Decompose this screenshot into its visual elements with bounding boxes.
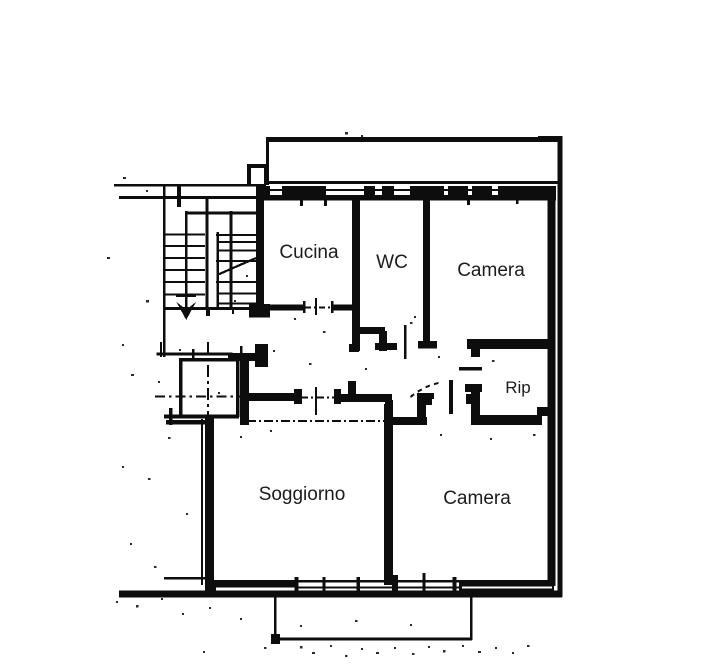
svg-text:WC: WC	[376, 252, 408, 273]
svg-text:Camera: Camera	[443, 488, 511, 509]
svg-text:Rip: Rip	[505, 378, 531, 397]
svg-text:Camera: Camera	[457, 260, 525, 281]
svg-text:Soggiorno: Soggiorno	[259, 484, 346, 505]
svg-text:Cucina: Cucina	[279, 242, 339, 263]
